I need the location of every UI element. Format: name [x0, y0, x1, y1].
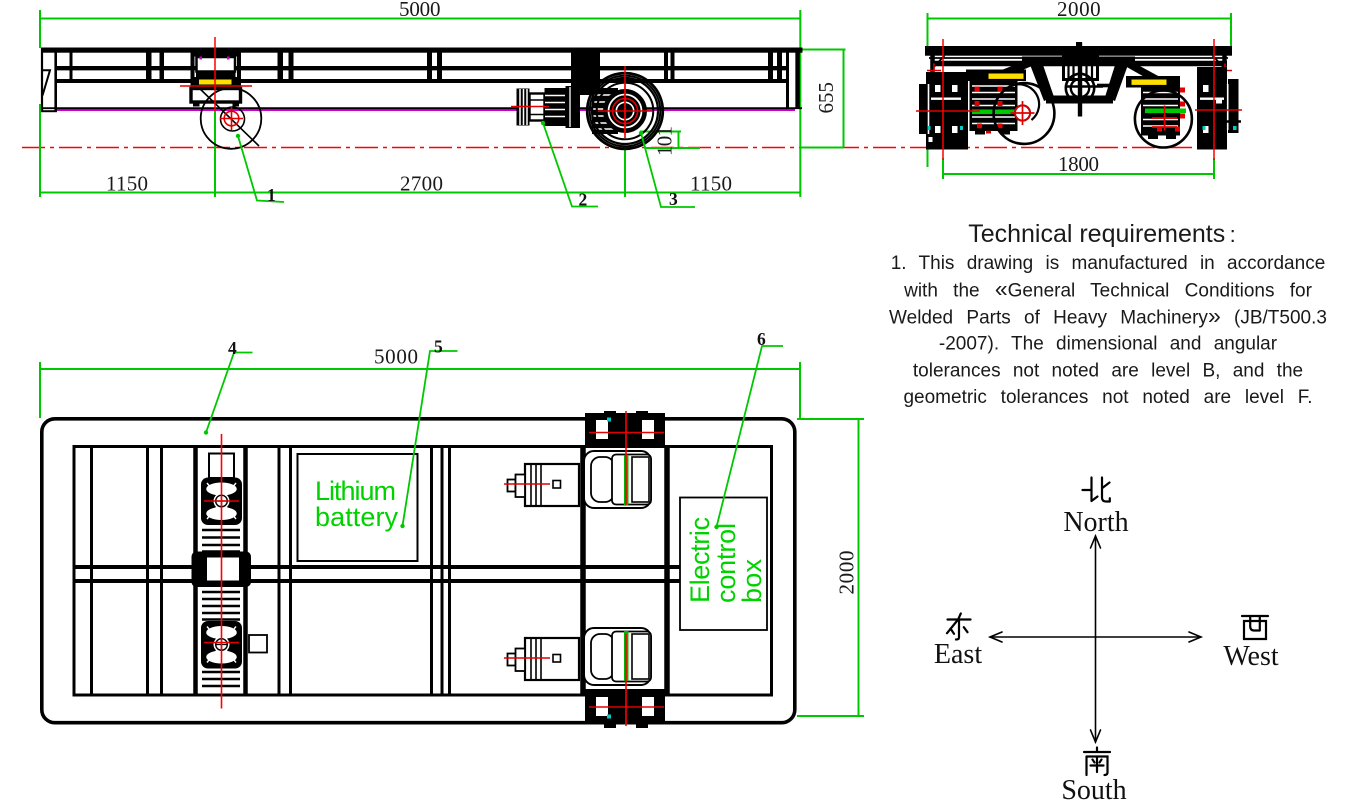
svg-text:battery: battery — [315, 502, 399, 532]
svg-text:1800: 1800 — [1058, 152, 1099, 176]
svg-text:1: 1 — [267, 185, 276, 205]
svg-text:4: 4 — [228, 338, 237, 358]
svg-text:East: East — [934, 639, 982, 670]
svg-text:2000: 2000 — [835, 551, 859, 595]
svg-text:West: West — [1223, 641, 1279, 672]
svg-text:5000: 5000 — [374, 345, 418, 369]
svg-text:2: 2 — [579, 190, 588, 210]
svg-text:1. This drawing is manufacture: 1. This drawing is manufactured in accor… — [891, 253, 1326, 274]
svg-text:3: 3 — [669, 189, 678, 209]
svg-text:geometric tolerances not noted: geometric tolerances not noted are level… — [903, 387, 1312, 408]
svg-text:6: 6 — [757, 329, 766, 349]
svg-text:Welded Parts of Heavy Machiner: Welded Parts of Heavy Machinery» (JB/T50… — [889, 303, 1327, 329]
svg-text:-2007). The dimensional and an: -2007). The dimensional and angular — [939, 334, 1278, 355]
svg-text:2000: 2000 — [1057, 0, 1101, 21]
svg-text:2700: 2700 — [400, 172, 443, 196]
svg-text:Technical requirements :: Technical requirements : — [968, 220, 1236, 248]
svg-text:5: 5 — [434, 337, 443, 357]
svg-text:655: 655 — [814, 82, 838, 114]
svg-text:1150: 1150 — [106, 172, 148, 196]
svg-text:North: North — [1063, 507, 1128, 538]
svg-text:with the «General Technical Co: with the «General Technical Conditions f… — [903, 276, 1312, 302]
svg-text:South: South — [1061, 775, 1126, 801]
svg-text:tolerances not noted are level: tolerances not noted are level B, and th… — [913, 361, 1303, 382]
svg-text:5000: 5000 — [399, 0, 441, 21]
svg-text:box: box — [737, 559, 767, 604]
svg-text:1150: 1150 — [690, 172, 732, 196]
